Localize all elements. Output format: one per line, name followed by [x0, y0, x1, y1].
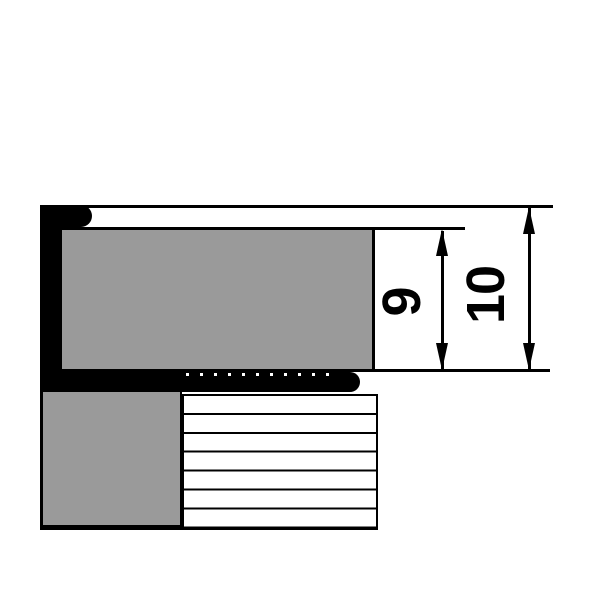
arrowhead-up-icon [523, 207, 535, 234]
arrowhead-down-icon [523, 343, 535, 370]
arrowhead-down-icon [436, 343, 448, 370]
base-serration-dots [186, 373, 340, 376]
drawing-canvas: 9 10 [0, 0, 600, 600]
extension-line-top [40, 205, 553, 208]
adhesive-hatch-layer [182, 394, 378, 530]
tile-section [62, 230, 372, 369]
dimension-label-10: 10 [456, 250, 516, 340]
substrate-square [40, 392, 182, 530]
dimension-label-9: 9 [372, 272, 432, 332]
arrowhead-up-icon [436, 229, 448, 256]
profile-vertical-wall [40, 205, 62, 392]
